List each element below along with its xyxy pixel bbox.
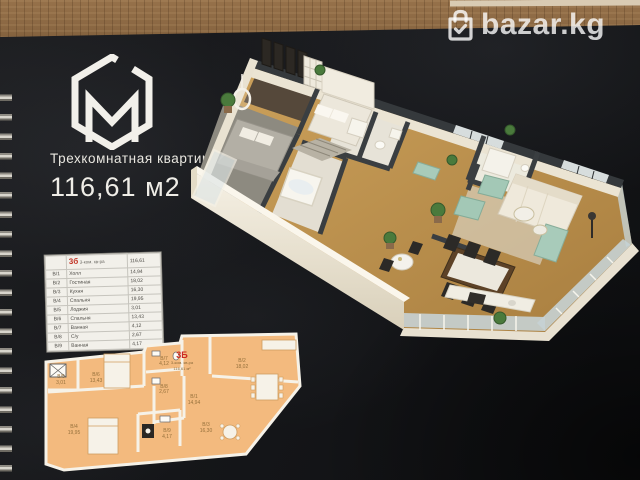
room-area: 3,01: [56, 380, 66, 386]
room-area: 4,17: [162, 434, 172, 440]
shopping-bag-check-icon: [447, 9, 474, 41]
room-area: 14,94: [188, 400, 201, 406]
watermark-label: bazar.kg: [481, 6, 605, 44]
room-area: 2,67: [159, 389, 169, 395]
plan-unit-code: 3Б: [176, 350, 188, 360]
plan-unit-type: 3-ком. кв-ра: [171, 360, 194, 365]
room-area: 13,43: [90, 378, 103, 384]
room-area: 18,02: [236, 364, 249, 370]
bazar-watermark: bazar.kg: [447, 6, 605, 44]
floorplan-2d: 3Б 3-ком. кв-ра 116,61 м² В/5 3,01 В/6 1…: [34, 320, 314, 480]
plan-unit-area: 116,61 м²: [173, 366, 191, 371]
room-area: 4,12: [159, 361, 169, 367]
room-area: 16,30: [200, 428, 213, 434]
room-area: 19,95: [68, 430, 81, 436]
photo-of-brochure: { "watermark": { "label": "bazar.kg", "i…: [0, 0, 640, 480]
